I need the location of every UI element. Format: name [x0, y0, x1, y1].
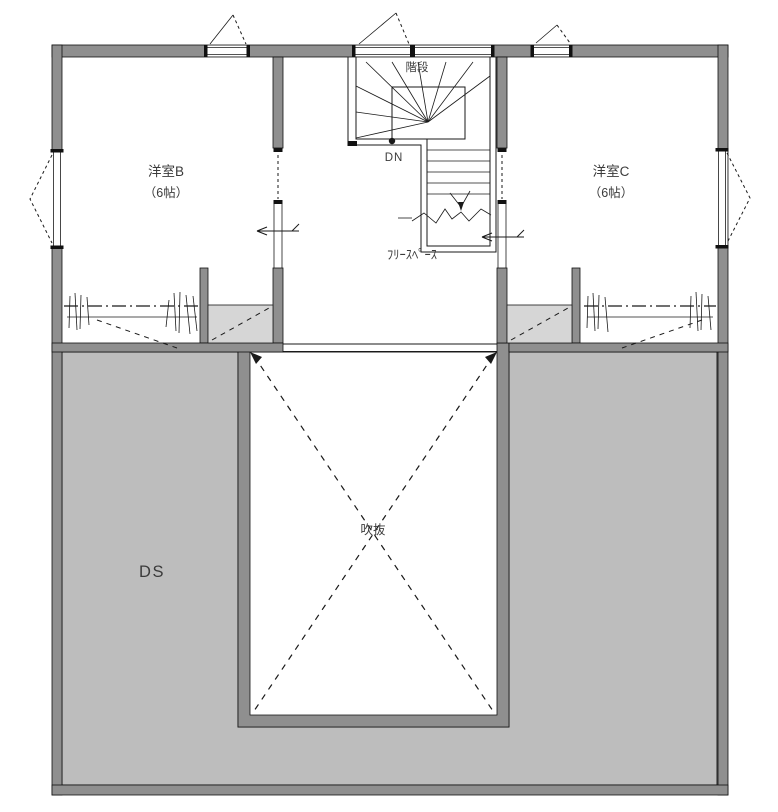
room-b-label: 洋室B [148, 163, 184, 179]
storage-box-left [208, 305, 273, 343]
hanger-strokes-left [69, 293, 89, 330]
hanger-strokes-right [690, 292, 711, 331]
floor-plan-canvas: 階段 DN [0, 0, 778, 812]
stairwell-top-window-icon [352, 13, 495, 57]
stair-break-line-icon [398, 191, 491, 223]
room-c-size-label: （6帖） [589, 185, 633, 200]
hanger-strokes-right [166, 292, 197, 334]
room-c-top-window-icon [531, 25, 573, 57]
room-b-top-window-icon [204, 15, 250, 57]
duct-space-label: DS [139, 563, 165, 581]
room-b-sliding-door-icon [257, 148, 299, 268]
partition-walls [52, 57, 728, 352]
free-space-label: ﾌﾘｰｽﾍﾟｰｽ [387, 248, 437, 262]
stair-down-marker [389, 106, 395, 144]
room-b-size-label: （6帖） [144, 185, 188, 200]
room-c-sliding-door-icon [482, 148, 524, 268]
void-top-railing [283, 344, 497, 352]
room-c-closet-icon [584, 292, 716, 348]
stairs-label: 階段 [406, 60, 429, 74]
hanger-strokes-left [587, 293, 608, 332]
room-c-label: 洋室C [593, 163, 630, 179]
stair-dn-label: DN [385, 152, 404, 164]
staircase: 階段 DN [348, 57, 497, 252]
stair-treads [427, 150, 490, 194]
room-b-closet-icon [64, 292, 200, 348]
room-b-side-window-icon [30, 149, 64, 249]
void-label: 吹抜 [360, 522, 386, 537]
storage-box-right [507, 305, 572, 343]
room-c-side-window-icon [716, 148, 751, 249]
floor-plan-page: 階段 DN [0, 0, 778, 812]
